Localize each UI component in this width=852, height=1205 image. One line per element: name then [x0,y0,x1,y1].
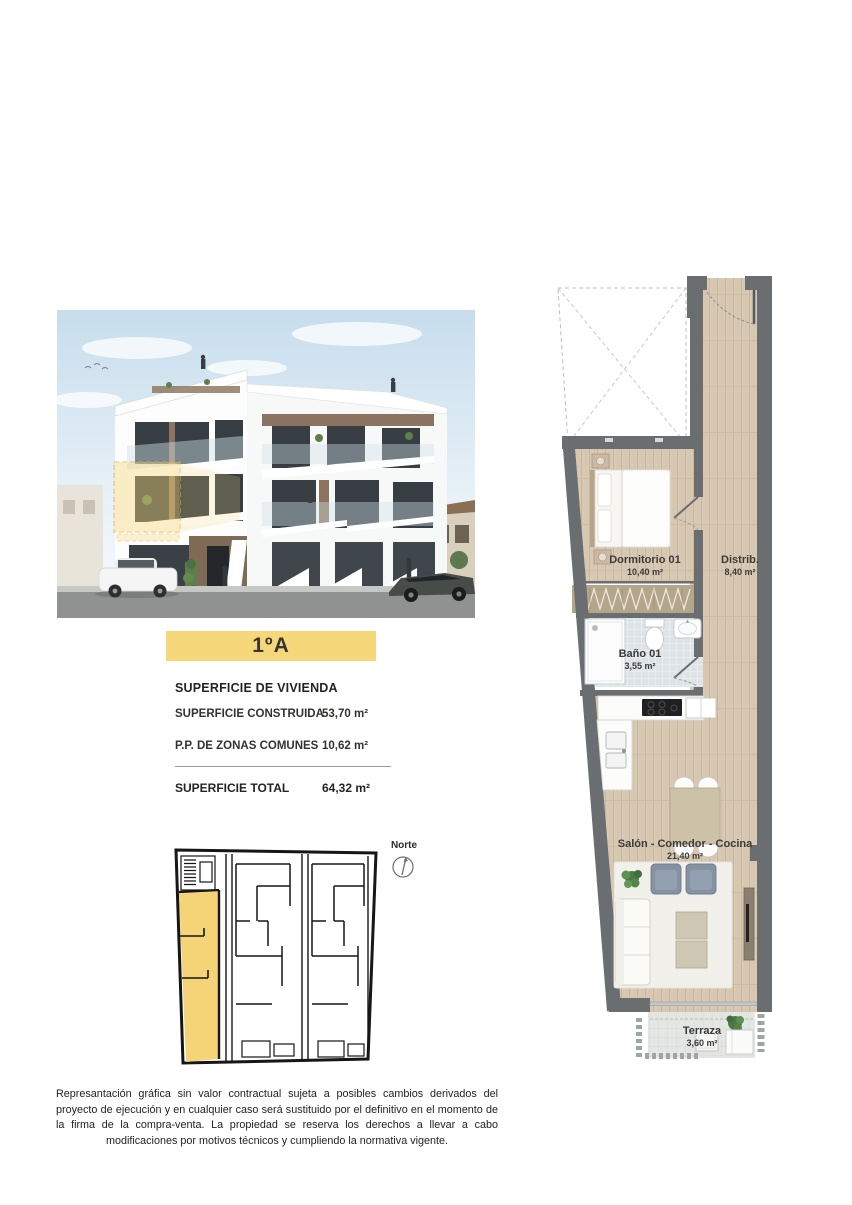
toilet [645,619,664,651]
tv-sideboard [744,888,754,960]
floorplan: Dormitorio 01 10,40 m² Distrib. 8,40 m² … [550,272,778,1072]
disclaimer-text: Represantación gráfica sin valor contrac… [56,1087,498,1149]
neighbor-window [63,500,75,514]
room-area-bano: 3,55 m² [624,661,655,671]
surface-row-constructed: SUPERFICIE CONSTRUIDA 53,70 m² [175,708,391,720]
surface-total-row: SUPERFICIE TOTAL 64,32 m² [175,781,391,795]
north-compass: Norte [382,836,426,886]
lounge-chair [726,1030,753,1054]
surface-row-common-zones: P.P. DE ZONAS COMUNES 10,62 m² [175,740,391,752]
plan-sheet-page: 1ºA SUPERFICIE DE VIVIENDA SUPERFICIE CO… [0,0,852,1205]
room-label-terraza: Terraza [683,1025,722,1037]
unit-banner-label: 1ºA [252,634,290,658]
surface-row-label: SUPERFICIE CONSTRUIDA [175,708,324,720]
window-mark [605,438,613,442]
window-mark [655,438,663,442]
building-render [57,310,475,618]
keyplan [162,836,390,1072]
surface-row-label: P.P. DE ZONAS COMUNES [175,740,318,752]
surface-row-value: 10,62 m² [322,740,368,752]
keyplan-unit-highlight [179,890,219,1062]
room-area-terraza: 3,60 m² [686,1038,717,1048]
surface-row-value: 53,70 m² [322,708,368,720]
void-area [558,288,686,444]
surface-total-label: SUPERFICIE TOTAL [175,781,289,795]
neighbor-window [83,500,95,514]
room-area-dormitorio: 10,40 m² [627,567,663,577]
room-label-dormitorio: Dormitorio 01 [609,554,681,566]
north-label: Norte [391,840,418,851]
surface-panel-title: SUPERFICIE DE VIVIENDA [175,681,338,695]
sofa [616,899,650,985]
roof-pergola [152,386,240,393]
room-label-bano: Baño 01 [619,648,662,660]
terrace-door [650,1002,757,1006]
unit-banner: 1ºA [166,631,376,661]
compass-icon [393,857,413,877]
surface-total-value: 64,32 m² [322,781,370,795]
wardrobe [572,581,703,613]
surface-divider [175,766,391,767]
dining-table [670,788,720,844]
room-area-distribuidor: 8,40 m² [724,567,755,577]
bath-sink [674,619,701,638]
room-label-distribuidor: Distrib. [721,554,759,566]
room-label-salon: Salón - Comedor - Cocina [618,838,753,850]
room-area-salon: 21,40 m² [667,851,703,861]
